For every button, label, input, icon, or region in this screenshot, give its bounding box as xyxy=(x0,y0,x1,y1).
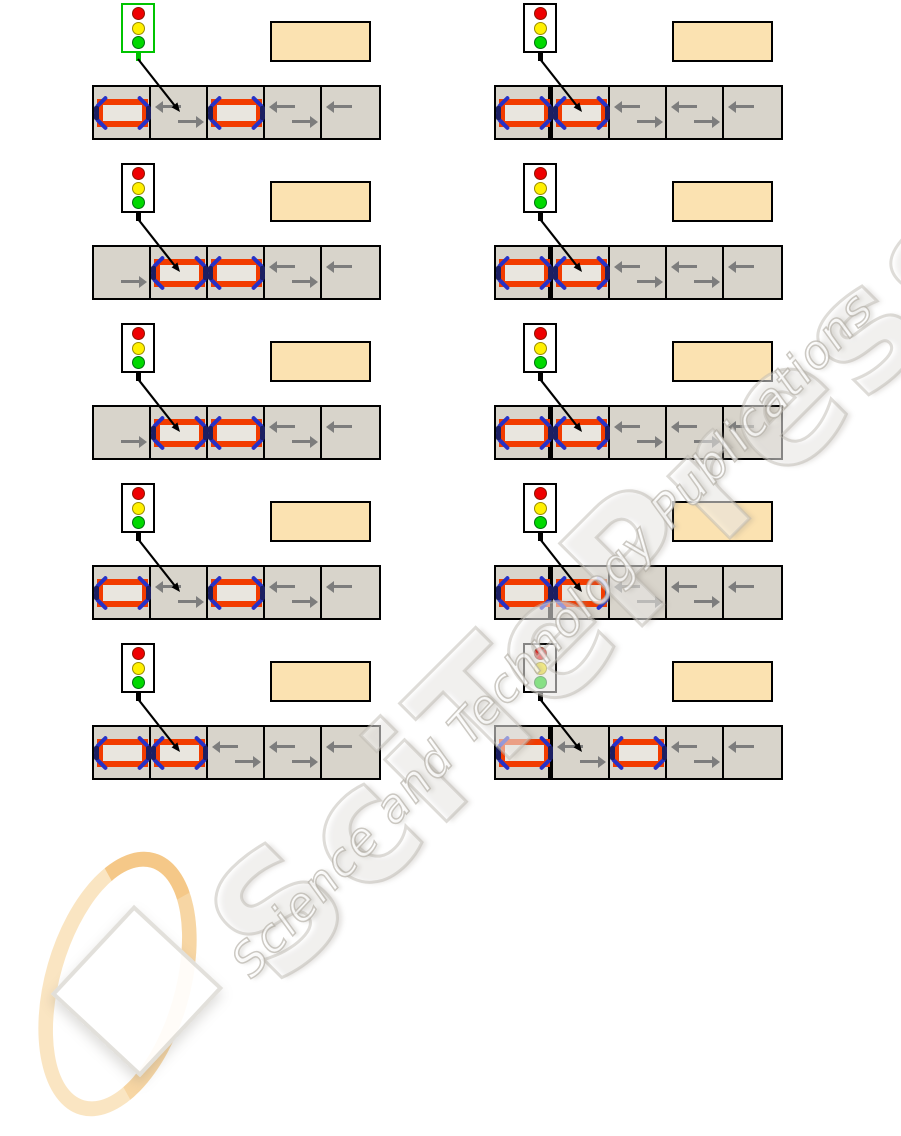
car-wheel xyxy=(553,112,558,120)
traffic-light-pole xyxy=(136,53,141,61)
road-cell xyxy=(667,407,724,458)
lane-arrow-right-icon xyxy=(121,440,139,443)
traffic-light-icon xyxy=(523,643,557,693)
label-box xyxy=(672,341,773,382)
road-cell xyxy=(553,407,610,458)
road-cell xyxy=(724,567,781,618)
car xyxy=(154,259,205,287)
label-box xyxy=(270,21,371,62)
road-cell xyxy=(553,247,610,298)
traffic-light-pole xyxy=(136,373,141,381)
simulation-step-panel xyxy=(92,160,392,320)
car xyxy=(556,579,607,607)
road-cell xyxy=(322,567,379,618)
road-cell xyxy=(151,247,208,298)
car-wheel xyxy=(151,432,156,440)
traffic-light-pole xyxy=(136,693,141,701)
traffic-light-icon xyxy=(121,323,155,373)
lane-arrow-left-icon xyxy=(622,425,640,428)
traffic-light-pole xyxy=(538,533,543,541)
yellow-lamp-icon xyxy=(132,662,145,675)
traffic-light-pole xyxy=(538,693,543,701)
road-cell xyxy=(496,87,553,138)
lane-arrow-left-icon xyxy=(163,105,181,108)
lane-arrow-right-icon xyxy=(178,600,196,603)
road-cell xyxy=(208,407,265,458)
simulation-step-panel xyxy=(92,640,392,800)
car-wheel xyxy=(94,592,99,600)
green-lamp-icon xyxy=(132,196,145,209)
car-wheel xyxy=(553,432,558,440)
lane-arrow-right-icon xyxy=(292,440,310,443)
lane-arrow-left-icon xyxy=(277,105,295,108)
road-cell xyxy=(724,247,781,298)
green-lamp-icon xyxy=(132,676,145,689)
lane-arrow-left-icon xyxy=(736,585,754,588)
lane-arrow-left-icon xyxy=(679,585,697,588)
road-strip xyxy=(92,245,381,300)
red-lamp-icon xyxy=(534,647,547,660)
lane-arrow-left-icon xyxy=(277,265,295,268)
yellow-lamp-icon xyxy=(132,22,145,35)
car-wheel xyxy=(496,592,501,600)
traffic-light-pole xyxy=(538,213,543,221)
label-box xyxy=(672,501,773,542)
road-strip xyxy=(92,725,381,780)
lane-arrow-left-icon xyxy=(679,425,697,428)
road-cell xyxy=(553,87,610,138)
car-wheel xyxy=(94,112,99,120)
label-box xyxy=(672,181,773,222)
lane-arrow-right-icon xyxy=(637,440,655,443)
road-strip xyxy=(92,85,381,140)
lane-arrow-right-icon xyxy=(637,280,655,283)
yellow-lamp-icon xyxy=(132,502,145,515)
green-lamp-icon xyxy=(132,356,145,369)
road-cell xyxy=(322,87,379,138)
car xyxy=(499,99,550,127)
car xyxy=(499,259,550,287)
lane-arrow-right-icon xyxy=(580,760,598,763)
label-box xyxy=(270,661,371,702)
car xyxy=(154,739,205,767)
green-lamp-icon xyxy=(534,516,547,529)
road-strip xyxy=(494,405,783,460)
traffic-light-icon xyxy=(523,483,557,533)
road-cell xyxy=(496,727,553,778)
yellow-lamp-icon xyxy=(132,182,145,195)
lane-arrow-right-icon xyxy=(235,760,253,763)
red-lamp-icon xyxy=(132,7,145,20)
road-cell xyxy=(667,247,724,298)
lane-arrow-left-icon xyxy=(277,425,295,428)
label-box xyxy=(270,501,371,542)
road-cell xyxy=(208,727,265,778)
green-lamp-icon xyxy=(132,36,145,49)
lane-arrow-right-icon xyxy=(292,280,310,283)
green-lamp-icon xyxy=(534,196,547,209)
red-lamp-icon xyxy=(534,7,547,20)
lane-arrow-left-icon xyxy=(277,585,295,588)
traffic-light-icon xyxy=(523,323,557,373)
car-wheel xyxy=(151,752,156,760)
road-cell xyxy=(322,407,379,458)
yellow-lamp-icon xyxy=(132,342,145,355)
car xyxy=(211,259,262,287)
car xyxy=(556,99,607,127)
red-lamp-icon xyxy=(534,487,547,500)
red-lamp-icon xyxy=(534,327,547,340)
car-wheel xyxy=(208,272,213,280)
traffic-light-pole xyxy=(136,213,141,221)
road-cell xyxy=(496,247,553,298)
traffic-light-icon xyxy=(121,643,155,693)
traffic-light-pole xyxy=(538,53,543,61)
yellow-lamp-icon xyxy=(534,182,547,195)
lane-arrow-left-icon xyxy=(622,105,640,108)
lane-arrow-left-icon xyxy=(334,265,352,268)
traffic-light-icon xyxy=(121,3,155,53)
green-lamp-icon xyxy=(534,356,547,369)
car-wheel xyxy=(94,752,99,760)
road-cell xyxy=(94,247,151,298)
car-wheel xyxy=(553,272,558,280)
road-strip xyxy=(494,565,783,620)
car-wheel xyxy=(208,432,213,440)
lane-arrow-right-icon xyxy=(292,760,310,763)
lane-arrow-left-icon xyxy=(679,105,697,108)
red-lamp-icon xyxy=(132,327,145,340)
lane-arrow-right-icon xyxy=(637,120,655,123)
yellow-lamp-icon xyxy=(534,502,547,515)
red-lamp-icon xyxy=(132,647,145,660)
road-cell xyxy=(610,407,667,458)
traffic-light-icon xyxy=(523,163,557,213)
label-box xyxy=(270,341,371,382)
road-strip xyxy=(92,405,381,460)
red-lamp-icon xyxy=(534,167,547,180)
road-cell xyxy=(667,567,724,618)
lane-arrow-right-icon xyxy=(694,120,712,123)
lane-arrow-left-icon xyxy=(334,585,352,588)
road-cell xyxy=(496,567,553,618)
lane-arrow-right-icon xyxy=(637,600,655,603)
scitepress-logo-diamond-icon xyxy=(51,905,223,1077)
road-cell xyxy=(610,247,667,298)
simulation-step-panel xyxy=(92,320,392,480)
road-cell xyxy=(151,407,208,458)
car-wheel xyxy=(610,752,615,760)
green-lamp-icon xyxy=(132,516,145,529)
road-cell xyxy=(151,87,208,138)
red-lamp-icon xyxy=(132,487,145,500)
traffic-light-icon xyxy=(523,3,557,53)
lane-arrow-left-icon xyxy=(622,265,640,268)
road-cell xyxy=(496,407,553,458)
road-cell xyxy=(208,247,265,298)
simulation-step-panel xyxy=(92,0,392,160)
lane-arrow-right-icon xyxy=(694,600,712,603)
simulation-step-panel xyxy=(494,160,794,320)
car-wheel xyxy=(496,272,501,280)
road-cell xyxy=(667,727,724,778)
lane-arrow-left-icon xyxy=(334,105,352,108)
traffic-light-icon xyxy=(121,163,155,213)
lane-arrow-left-icon xyxy=(277,745,295,748)
road-strip xyxy=(494,85,783,140)
label-box xyxy=(270,181,371,222)
lane-arrow-left-icon xyxy=(736,425,754,428)
label-box xyxy=(672,21,773,62)
road-cell xyxy=(553,567,610,618)
lane-arrow-left-icon xyxy=(736,105,754,108)
lane-arrow-left-icon xyxy=(220,745,238,748)
road-cell xyxy=(265,727,322,778)
car xyxy=(211,99,262,127)
yellow-lamp-icon xyxy=(534,342,547,355)
simulation-step-panel xyxy=(494,0,794,160)
red-lamp-icon xyxy=(132,167,145,180)
traffic-light-pole xyxy=(136,533,141,541)
lane-arrow-right-icon xyxy=(694,280,712,283)
lane-arrow-left-icon xyxy=(565,745,583,748)
car xyxy=(499,579,550,607)
label-box xyxy=(672,661,773,702)
lane-arrow-right-icon xyxy=(694,440,712,443)
road-strip xyxy=(494,725,783,780)
lane-arrow-left-icon xyxy=(736,265,754,268)
road-cell xyxy=(610,87,667,138)
road-cell xyxy=(151,567,208,618)
road-cell xyxy=(322,727,379,778)
lane-arrow-left-icon xyxy=(334,745,352,748)
road-cell xyxy=(208,87,265,138)
car xyxy=(97,739,148,767)
road-cell xyxy=(265,87,322,138)
road-cell xyxy=(94,567,151,618)
lane-arrow-left-icon xyxy=(679,745,697,748)
lane-arrow-right-icon xyxy=(178,120,196,123)
yellow-lamp-icon xyxy=(534,662,547,675)
road-cell xyxy=(724,87,781,138)
car-wheel xyxy=(496,112,501,120)
road-cell xyxy=(610,567,667,618)
lane-arrow-right-icon xyxy=(694,760,712,763)
car xyxy=(97,99,148,127)
car-wheel xyxy=(151,272,156,280)
car-wheel xyxy=(208,592,213,600)
lane-arrow-left-icon xyxy=(622,585,640,588)
road-cell xyxy=(151,727,208,778)
lane-arrow-left-icon xyxy=(736,745,754,748)
road-cell xyxy=(667,87,724,138)
lane-arrow-left-icon xyxy=(679,265,697,268)
yellow-lamp-icon xyxy=(534,22,547,35)
car xyxy=(499,419,550,447)
car xyxy=(211,579,262,607)
road-cell xyxy=(208,567,265,618)
road-cell xyxy=(94,87,151,138)
car xyxy=(556,259,607,287)
road-cell xyxy=(265,407,322,458)
car-wheel xyxy=(553,592,558,600)
road-cell xyxy=(94,407,151,458)
car xyxy=(211,419,262,447)
car xyxy=(97,579,148,607)
simulation-step-panel xyxy=(494,480,794,640)
car xyxy=(613,739,664,767)
road-strip xyxy=(92,565,381,620)
car-wheel xyxy=(496,432,501,440)
figure-page: SciTePress Science and Technology Public… xyxy=(0,0,901,1136)
road-cell xyxy=(94,727,151,778)
lane-arrow-right-icon xyxy=(292,600,310,603)
road-cell xyxy=(265,567,322,618)
road-cell xyxy=(610,727,667,778)
green-lamp-icon xyxy=(534,36,547,49)
car xyxy=(556,419,607,447)
road-cell xyxy=(553,727,610,778)
lane-arrow-left-icon xyxy=(163,585,181,588)
simulation-step-panel xyxy=(494,640,794,800)
car xyxy=(499,739,550,767)
road-cell xyxy=(322,247,379,298)
scitepress-logo-ellipse-icon xyxy=(10,833,224,1134)
lane-arrow-right-icon xyxy=(292,120,310,123)
road-strip xyxy=(494,245,783,300)
car xyxy=(154,419,205,447)
road-cell xyxy=(265,247,322,298)
green-lamp-icon xyxy=(534,676,547,689)
traffic-light-pole xyxy=(538,373,543,381)
lane-arrow-left-icon xyxy=(334,425,352,428)
car-wheel xyxy=(496,752,501,760)
traffic-light-icon xyxy=(121,483,155,533)
simulation-step-panel xyxy=(92,480,392,640)
car-wheel xyxy=(208,112,213,120)
simulation-step-panel xyxy=(494,320,794,480)
road-cell xyxy=(724,407,781,458)
road-cell xyxy=(724,727,781,778)
lane-arrow-right-icon xyxy=(121,280,139,283)
